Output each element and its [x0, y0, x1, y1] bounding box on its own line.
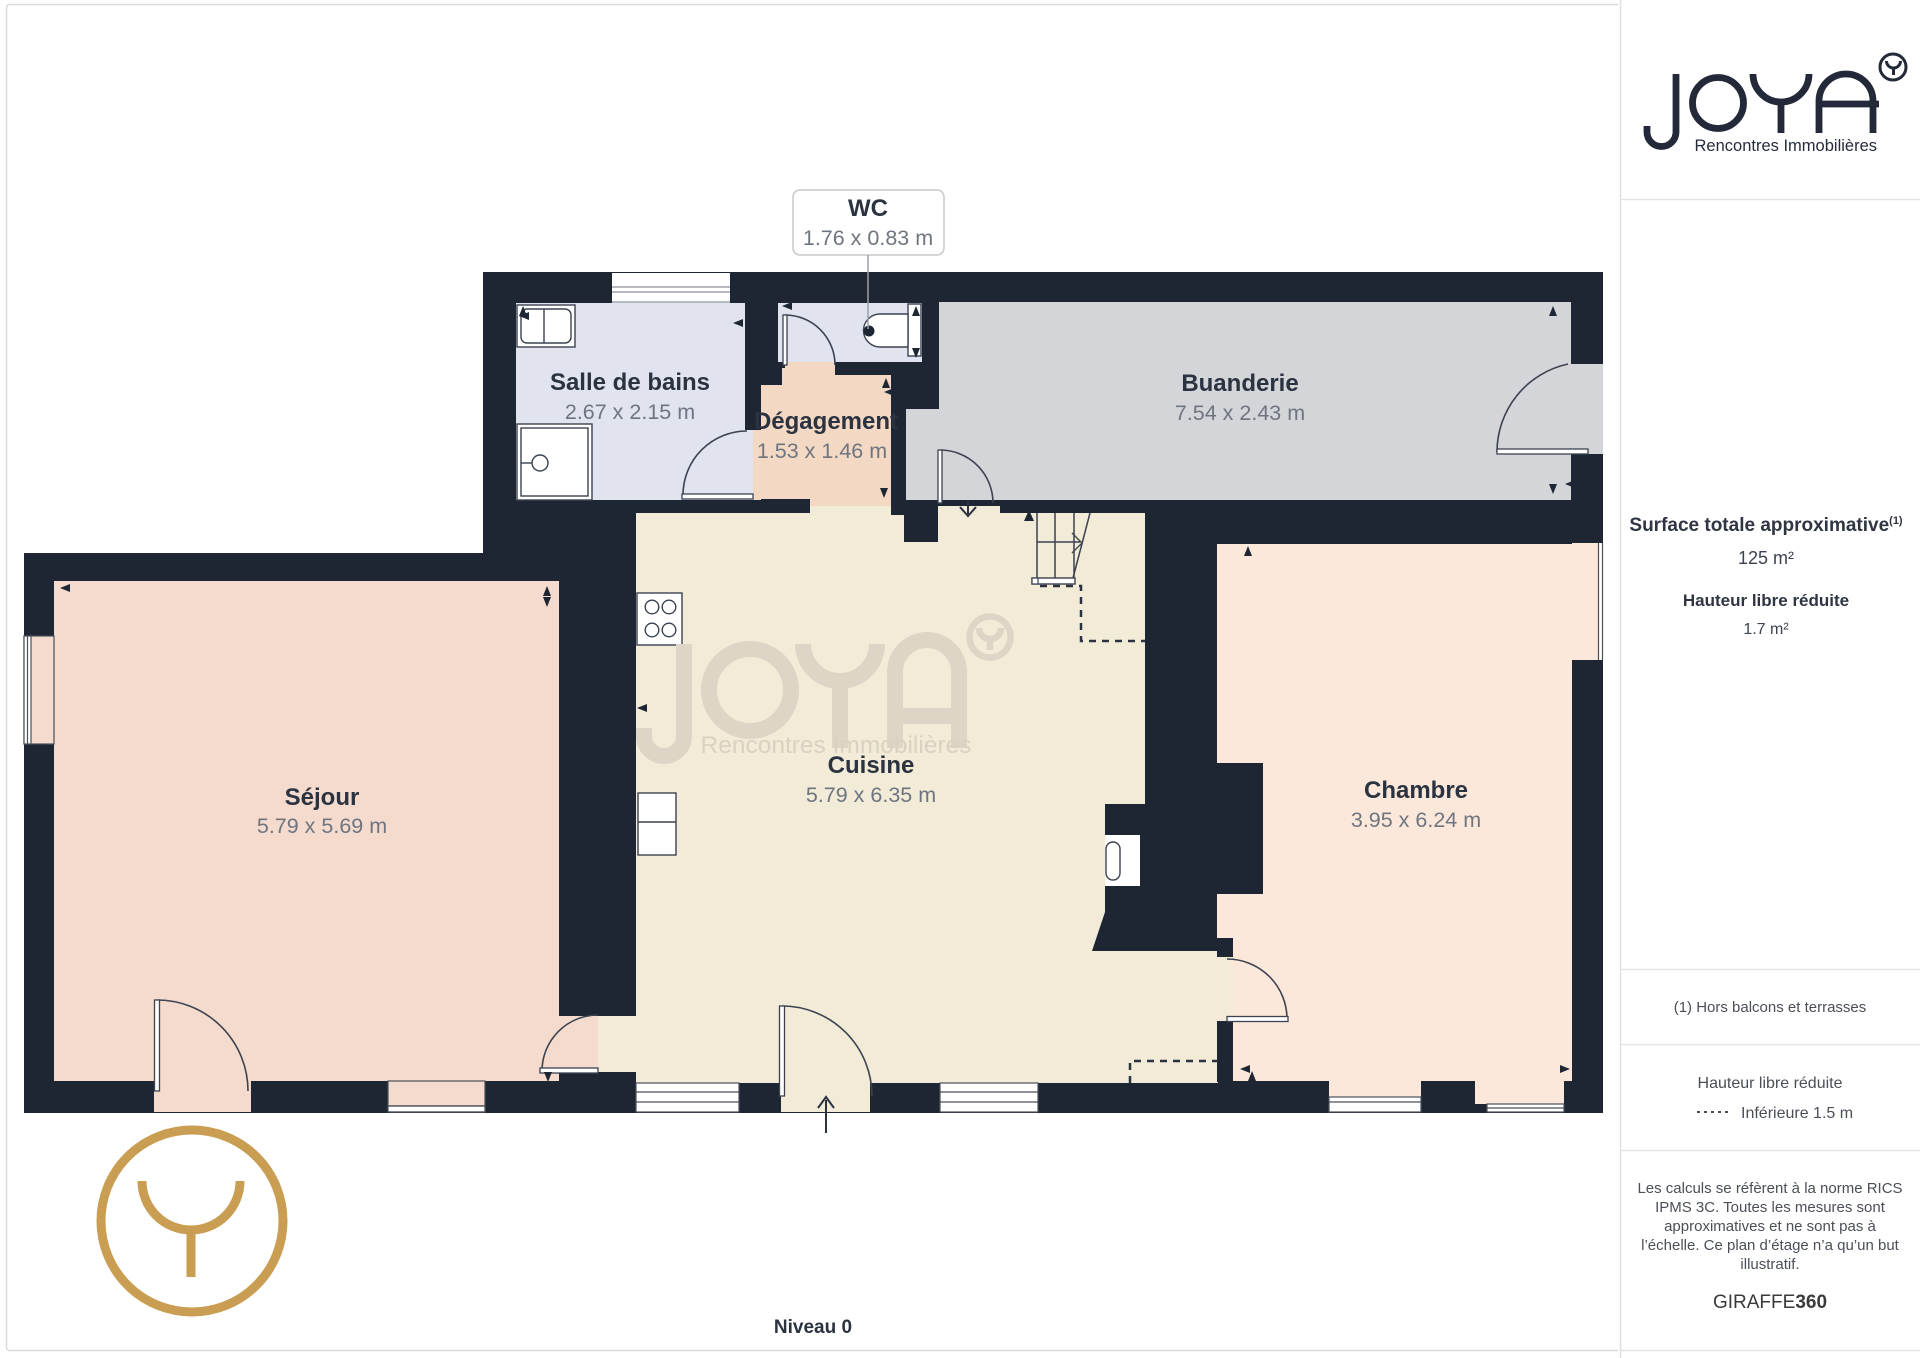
svg-text:Cuisine: Cuisine	[828, 752, 915, 779]
svg-text:Salle de bains: Salle de bains	[550, 369, 710, 396]
svg-text:GIRAFFE360: GIRAFFE360	[1713, 1292, 1827, 1313]
svg-text:Chambre: Chambre	[1364, 777, 1468, 804]
svg-text:5.79 x 6.35 m: 5.79 x 6.35 m	[806, 783, 936, 807]
svg-text:WC: WC	[848, 195, 888, 222]
svg-text:Hauteur libre réduite: Hauteur libre réduite	[1683, 591, 1849, 610]
svg-text:(1) Hors balcons et terrasses: (1) Hors balcons et terrasses	[1674, 999, 1867, 1016]
svg-text:Les calculs se réfèrent à la n: Les calculs se réfèrent à la norme RICS	[1637, 1180, 1902, 1197]
svg-text:Surface totale approximative(1: Surface totale approximative(1)	[1629, 515, 1903, 536]
svg-text:Buanderie: Buanderie	[1181, 370, 1298, 397]
svg-text:Niveau 0: Niveau 0	[774, 1317, 852, 1338]
svg-text:approximatives et ne sont pas: approximatives et ne sont pas à	[1664, 1218, 1876, 1235]
svg-text:3.95 x 6.24 m: 3.95 x 6.24 m	[1351, 808, 1481, 832]
svg-text:l’échelle. Ce plan d’étage n’a: l’échelle. Ce plan d’étage n’a qu’un but	[1641, 1237, 1900, 1254]
svg-text:Hauteur libre réduite: Hauteur libre réduite	[1698, 1075, 1843, 1092]
svg-text:2.67 x 2.15 m: 2.67 x 2.15 m	[565, 400, 695, 424]
svg-text:1.76 x 0.83 m: 1.76 x 0.83 m	[803, 226, 933, 250]
svg-text:Séjour: Séjour	[285, 784, 360, 811]
svg-text:5.79 x 5.69 m: 5.79 x 5.69 m	[257, 814, 387, 838]
svg-text:Rencontres Immobilières: Rencontres Immobilières	[1695, 137, 1877, 155]
svg-text:Dégagement: Dégagement	[754, 408, 898, 435]
svg-text:1.7 m²: 1.7 m²	[1743, 621, 1789, 638]
svg-text:7.54 x 2.43 m: 7.54 x 2.43 m	[1175, 401, 1305, 425]
svg-text:illustratif.: illustratif.	[1740, 1256, 1799, 1273]
svg-text:IPMS 3C. Toutes les mesures so: IPMS 3C. Toutes les mesures sont	[1655, 1199, 1886, 1216]
svg-text:125 m²: 125 m²	[1738, 548, 1794, 568]
svg-text:Inférieure 1.5 m: Inférieure 1.5 m	[1741, 1105, 1853, 1122]
svg-text:1.53 x 1.46 m: 1.53 x 1.46 m	[757, 439, 887, 463]
